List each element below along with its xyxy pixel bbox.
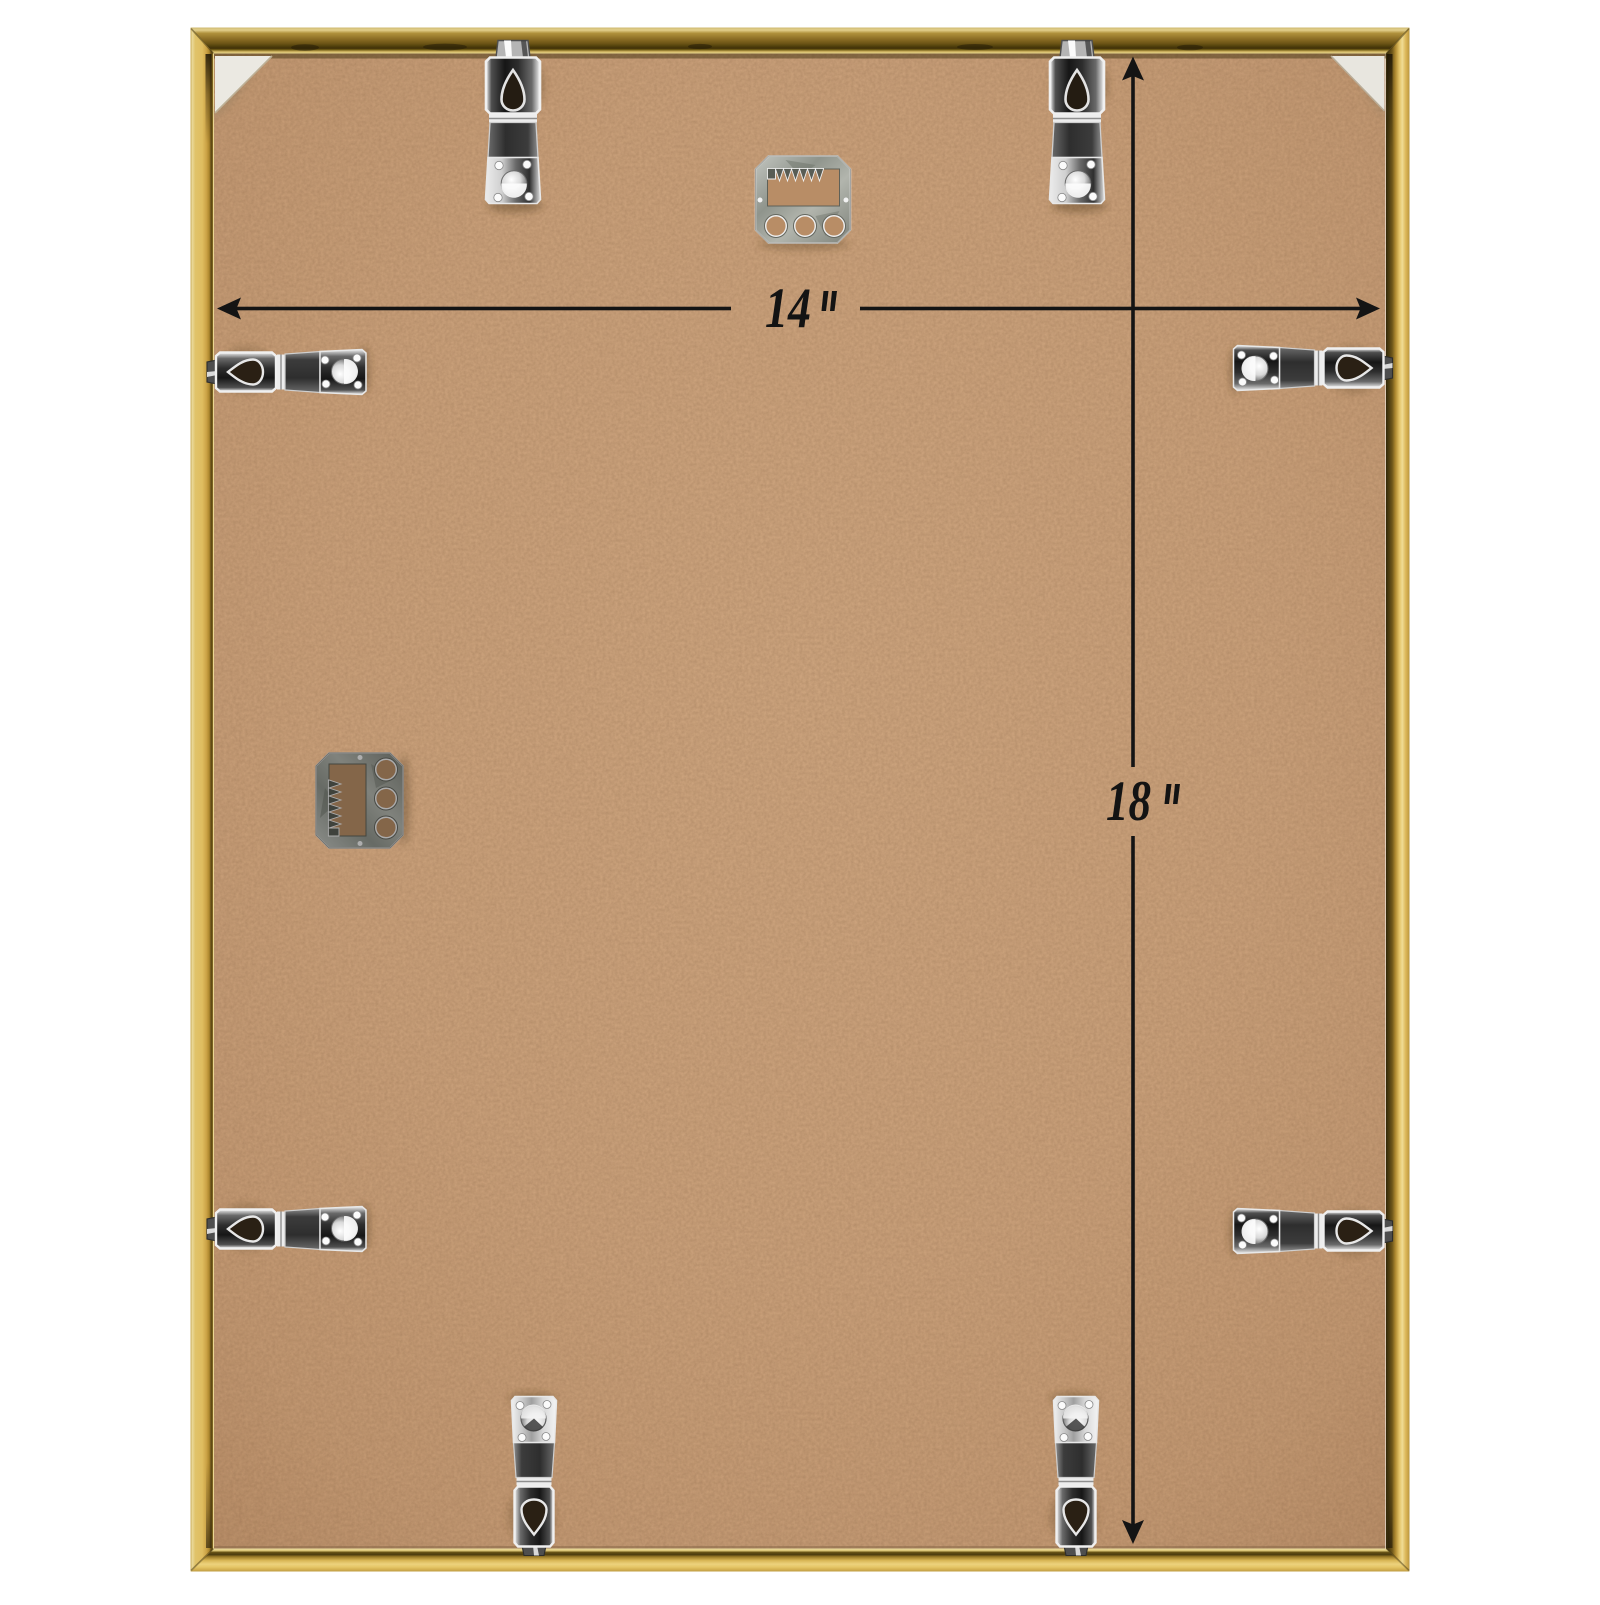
svg-text:14: 14 — [765, 277, 811, 340]
svg-text:18: 18 — [1106, 770, 1151, 833]
